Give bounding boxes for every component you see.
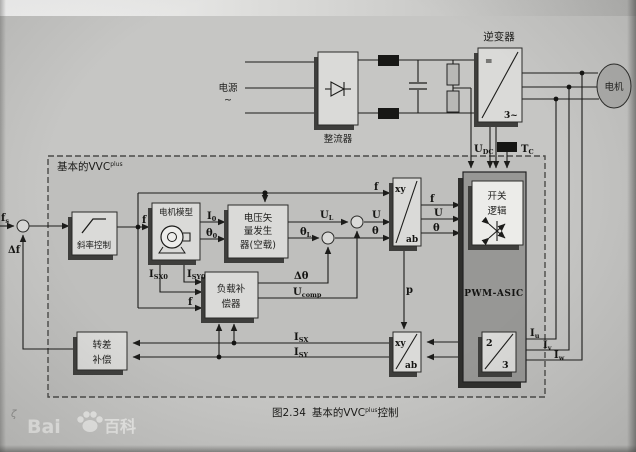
baidu-paw-icon [77,411,102,432]
f-label-comp: f [188,297,193,308]
ramp-control-block: 斜率控制 [68,212,117,260]
tc-label: TC [521,144,534,156]
switch-logic-line2: 逻辑 [487,205,507,217]
inverter-ac-symbol: 3~ [504,111,518,121]
three-label: 3 [502,360,509,371]
dc-choke-top [378,55,399,66]
dc-resistor-bottom [447,91,459,112]
dc-resistor-top [447,64,459,85]
temperature-sensor [497,142,517,152]
vvg-line3: 器(空载) [240,239,276,251]
vvg-line2: 量发生 [244,225,273,237]
u-label-pwm: U [434,208,443,219]
f-label-junction: f [142,215,147,226]
angle-summing-junction [322,232,334,244]
pwm-asic-label: PWM-ASIC [464,289,523,299]
motor-label: 电机 [604,81,624,93]
dc-choke-bottom [378,108,399,119]
f-label-pwm: f [430,194,435,205]
delta-f-label: Δf [8,245,21,256]
slip-compensation-block: 转差 补偿 [73,332,127,375]
theta-label-pwm: θ [433,223,440,234]
motor-model-label: 电机模型 [159,207,194,218]
two-three-phase-block: 2 3 [478,332,516,377]
figure-caption: 图2.34基本的VVCplus控制 [272,406,399,419]
ab-label-bottom: ab [405,361,417,371]
xy-ab-transform-top: xy ab [389,178,421,251]
xy-label: xy [395,185,406,195]
rectifier-label: 整流器 [324,133,353,145]
inverter-label: 逆变器 [483,30,515,43]
iv-label: Iv [543,340,552,352]
vvg-line1: 电压矢 [244,212,273,224]
xy-label-bottom: xy [395,339,406,349]
watermark-baike-text: 百科 [104,417,136,436]
load-comp-line1: 负载补 [217,283,246,295]
iw-label: Iw [554,350,565,362]
motor-model-block: 电机模型 [148,203,200,265]
power-source-label: 电源 [218,82,238,94]
ab-label: ab [406,235,418,245]
switch-logic-line1: 开关 [487,190,507,202]
udc-label: UDC [474,144,494,156]
inverter-block: = 3~ [474,48,522,127]
speed-summing-junction [17,220,29,232]
load-compensator-block: 负载补 偿器 [201,272,258,323]
baidu-baike-watermark: Bai 百科 ζ [10,409,136,438]
inverter-dc-symbol: = [485,57,493,67]
load-comp-line2: 偿器 [221,298,241,310]
ramp-control-label: 斜率控制 [77,240,111,251]
u-label: U [372,210,381,221]
slip-comp-line1: 转差 [92,339,111,351]
xy-ab-transform-bottom: xy ab [389,332,421,377]
slip-comp-line2: 补偿 [92,354,112,366]
voltage-vector-generator-block: 电压矢 量发生 器(空载) [224,205,288,263]
two-label: 2 [486,338,493,349]
vvc-control-diagram: 基本的VVCplus [0,0,636,452]
switching-logic-block: 开关 逻辑 [468,181,523,250]
power-source-tilde: ~ [224,95,232,106]
watermark-bai-text: Bai [27,416,61,438]
f-label-top: f [374,182,379,193]
theta-label: θ [372,226,379,237]
page-pencil-mark: ζ [10,409,17,420]
voltage-summing-junction [351,216,363,228]
delta-theta-label: Δθ [294,271,309,282]
p-label: p [406,285,413,296]
rectifier-block [314,52,358,130]
book-page-photo: 基本的VVCplus [0,0,636,452]
freq-setpoint-label: fs [1,213,9,225]
